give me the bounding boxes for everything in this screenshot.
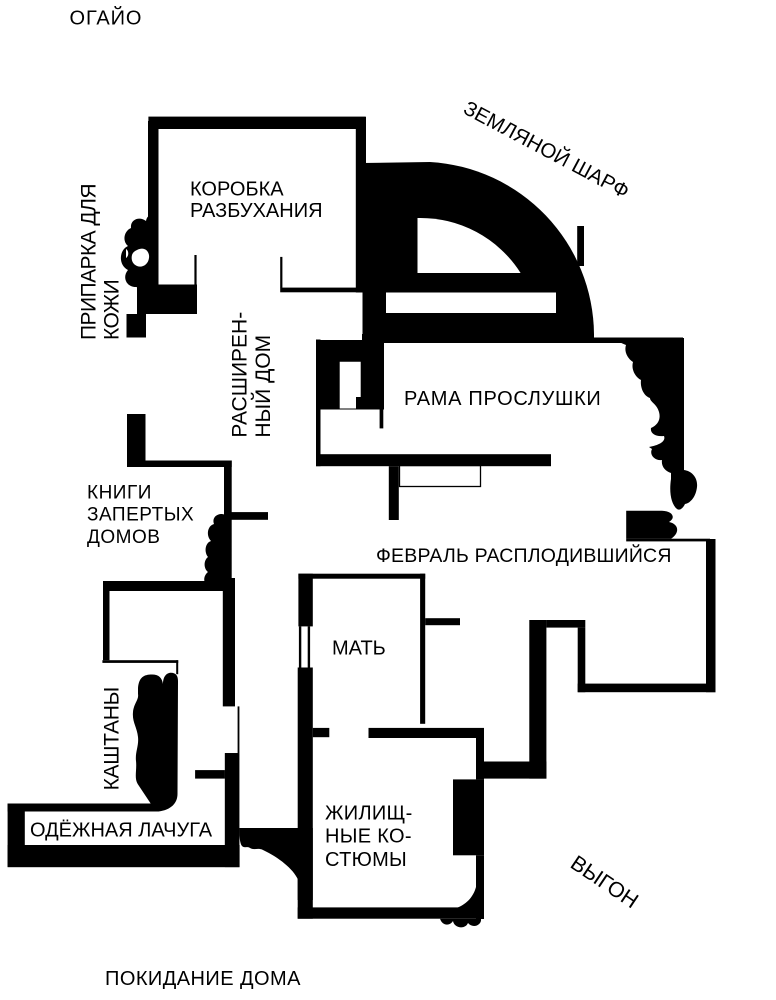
svg-text:МАТЬ: МАТЬ (332, 638, 386, 660)
svg-text:НЫЕ КО-: НЫЕ КО- (325, 826, 412, 848)
svg-text:КОРОБКА: КОРОБКА (190, 179, 284, 201)
svg-text:НЫЙ ДОМ: НЫЙ ДОМ (251, 335, 275, 438)
svg-text:РАСШИРЕН-: РАСШИРЕН- (228, 312, 251, 438)
svg-text:СТЮМЫ: СТЮМЫ (325, 849, 407, 871)
svg-text:ЗАПЕРТЫХ: ЗАПЕРТЫХ (87, 505, 194, 526)
svg-text:КНИГИ: КНИГИ (87, 483, 152, 504)
svg-text:РАЗБУХАНИЯ: РАЗБУХАНИЯ (190, 200, 323, 222)
svg-text:ДОМОВ: ДОМОВ (87, 527, 160, 548)
svg-text:ПОКИДАНИЕ ДОМА: ПОКИДАНИЕ ДОМА (105, 968, 301, 990)
svg-text:ЖИЛИЩ-: ЖИЛИЩ- (325, 802, 413, 824)
svg-text:КОЖИ: КОЖИ (100, 280, 123, 340)
svg-text:ОДЁЖНАЯ ЛАЧУГА: ОДЁЖНАЯ ЛАЧУГА (30, 820, 213, 842)
svg-text:ОГАЙО: ОГАЙО (70, 6, 143, 30)
svg-text:КАШТАНЫ: КАШТАНЫ (100, 687, 123, 790)
svg-text:ПРИПАРКА ДЛЯ: ПРИПАРКА ДЛЯ (78, 184, 101, 340)
svg-text:ФЕВРАЛЬ РАСПЛОДИВШИЙСЯ: ФЕВРАЛЬ РАСПЛОДИВШИЙСЯ (376, 543, 672, 567)
svg-text:РАМА ПРОСЛУШКИ: РАМА ПРОСЛУШКИ (404, 388, 602, 410)
